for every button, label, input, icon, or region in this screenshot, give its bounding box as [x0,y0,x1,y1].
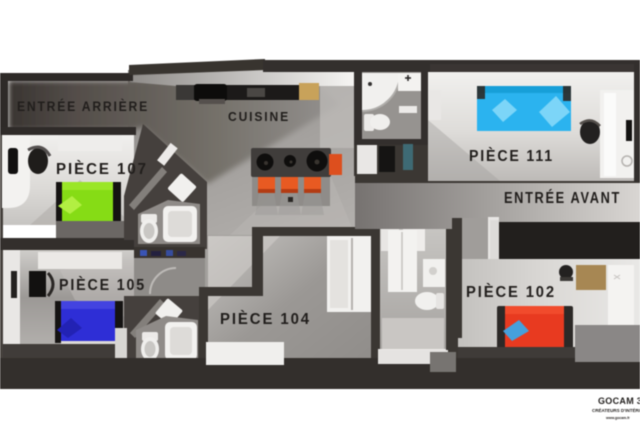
svg-text:PIÈCE 111: PIÈCE 111 [469,148,554,165]
svg-text:www.gocam.fr: www.gocam.fr [605,416,630,420]
svg-text:PIÈCE 102: PIÈCE 102 [466,284,556,301]
svg-text:CUISINE: CUISINE [228,109,290,124]
svg-text:CRÉATEURS D'INTÉRIEUR: CRÉATEURS D'INTÉRIEUR [592,406,640,413]
svg-text:PIÈCE 105: PIÈCE 105 [59,277,146,294]
svg-text:ENTRÉE ARRIÈRE: ENTRÉE ARRIÈRE [17,99,149,114]
svg-text:GOCAM 3: GOCAM 3 [598,396,640,406]
svg-text:PIÈCE 104: PIÈCE 104 [220,311,311,328]
svg-text:ENTRÉE AVANT: ENTRÉE AVANT [504,190,621,207]
svg-text:PIÈCE 107: PIÈCE 107 [56,161,148,178]
